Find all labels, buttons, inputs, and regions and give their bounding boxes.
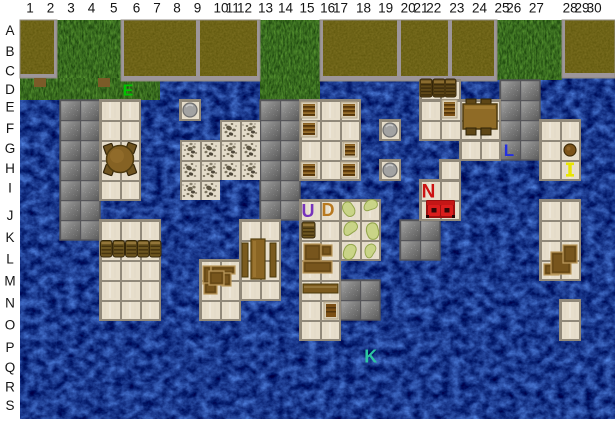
svg-text:D: D — [5, 82, 15, 97]
svg-text:12: 12 — [237, 1, 252, 16]
svg-text:D: D — [322, 200, 335, 220]
svg-text:26: 26 — [506, 1, 521, 16]
svg-text:L: L — [504, 141, 514, 160]
svg-text:U: U — [302, 201, 315, 221]
svg-text:5: 5 — [110, 1, 118, 16]
svg-text:P: P — [5, 340, 14, 355]
svg-text:24: 24 — [472, 1, 488, 16]
svg-text:H: H — [5, 161, 15, 176]
svg-text:8: 8 — [173, 1, 181, 16]
svg-text:7: 7 — [153, 1, 161, 16]
svg-text:22: 22 — [426, 1, 441, 16]
svg-text:15: 15 — [299, 1, 314, 16]
svg-text:C: C — [5, 63, 15, 78]
svg-text:N: N — [422, 181, 436, 202]
svg-text:18: 18 — [356, 1, 371, 16]
svg-text:M: M — [4, 273, 15, 288]
svg-text:4: 4 — [88, 1, 96, 16]
svg-text:E: E — [123, 83, 134, 100]
svg-text:S: S — [5, 398, 14, 413]
svg-text:E: E — [5, 100, 14, 115]
svg-text:R: R — [5, 379, 15, 394]
svg-text:A: A — [5, 23, 14, 38]
svg-text:19: 19 — [378, 1, 393, 16]
svg-text:27: 27 — [529, 1, 544, 16]
svg-text:K: K — [364, 347, 377, 367]
svg-text:9: 9 — [194, 1, 202, 16]
svg-text:14: 14 — [278, 1, 294, 16]
svg-text:13: 13 — [258, 1, 273, 16]
svg-text:N: N — [5, 295, 15, 310]
svg-text:B: B — [5, 44, 14, 59]
svg-text:G: G — [5, 141, 16, 156]
svg-text:L: L — [6, 251, 14, 266]
svg-text:I: I — [8, 181, 12, 196]
svg-text:23: 23 — [449, 1, 464, 16]
svg-text:K: K — [5, 230, 14, 245]
svg-text:J: J — [7, 208, 14, 223]
svg-text:O: O — [5, 317, 16, 332]
svg-text:3: 3 — [67, 1, 75, 16]
svg-text:2: 2 — [47, 1, 55, 16]
svg-text:30: 30 — [587, 1, 602, 16]
svg-text:F: F — [6, 121, 14, 136]
svg-text:Q: Q — [5, 360, 16, 375]
svg-text:17: 17 — [333, 1, 348, 16]
svg-text:6: 6 — [133, 1, 141, 16]
svg-text:1: 1 — [26, 1, 34, 16]
